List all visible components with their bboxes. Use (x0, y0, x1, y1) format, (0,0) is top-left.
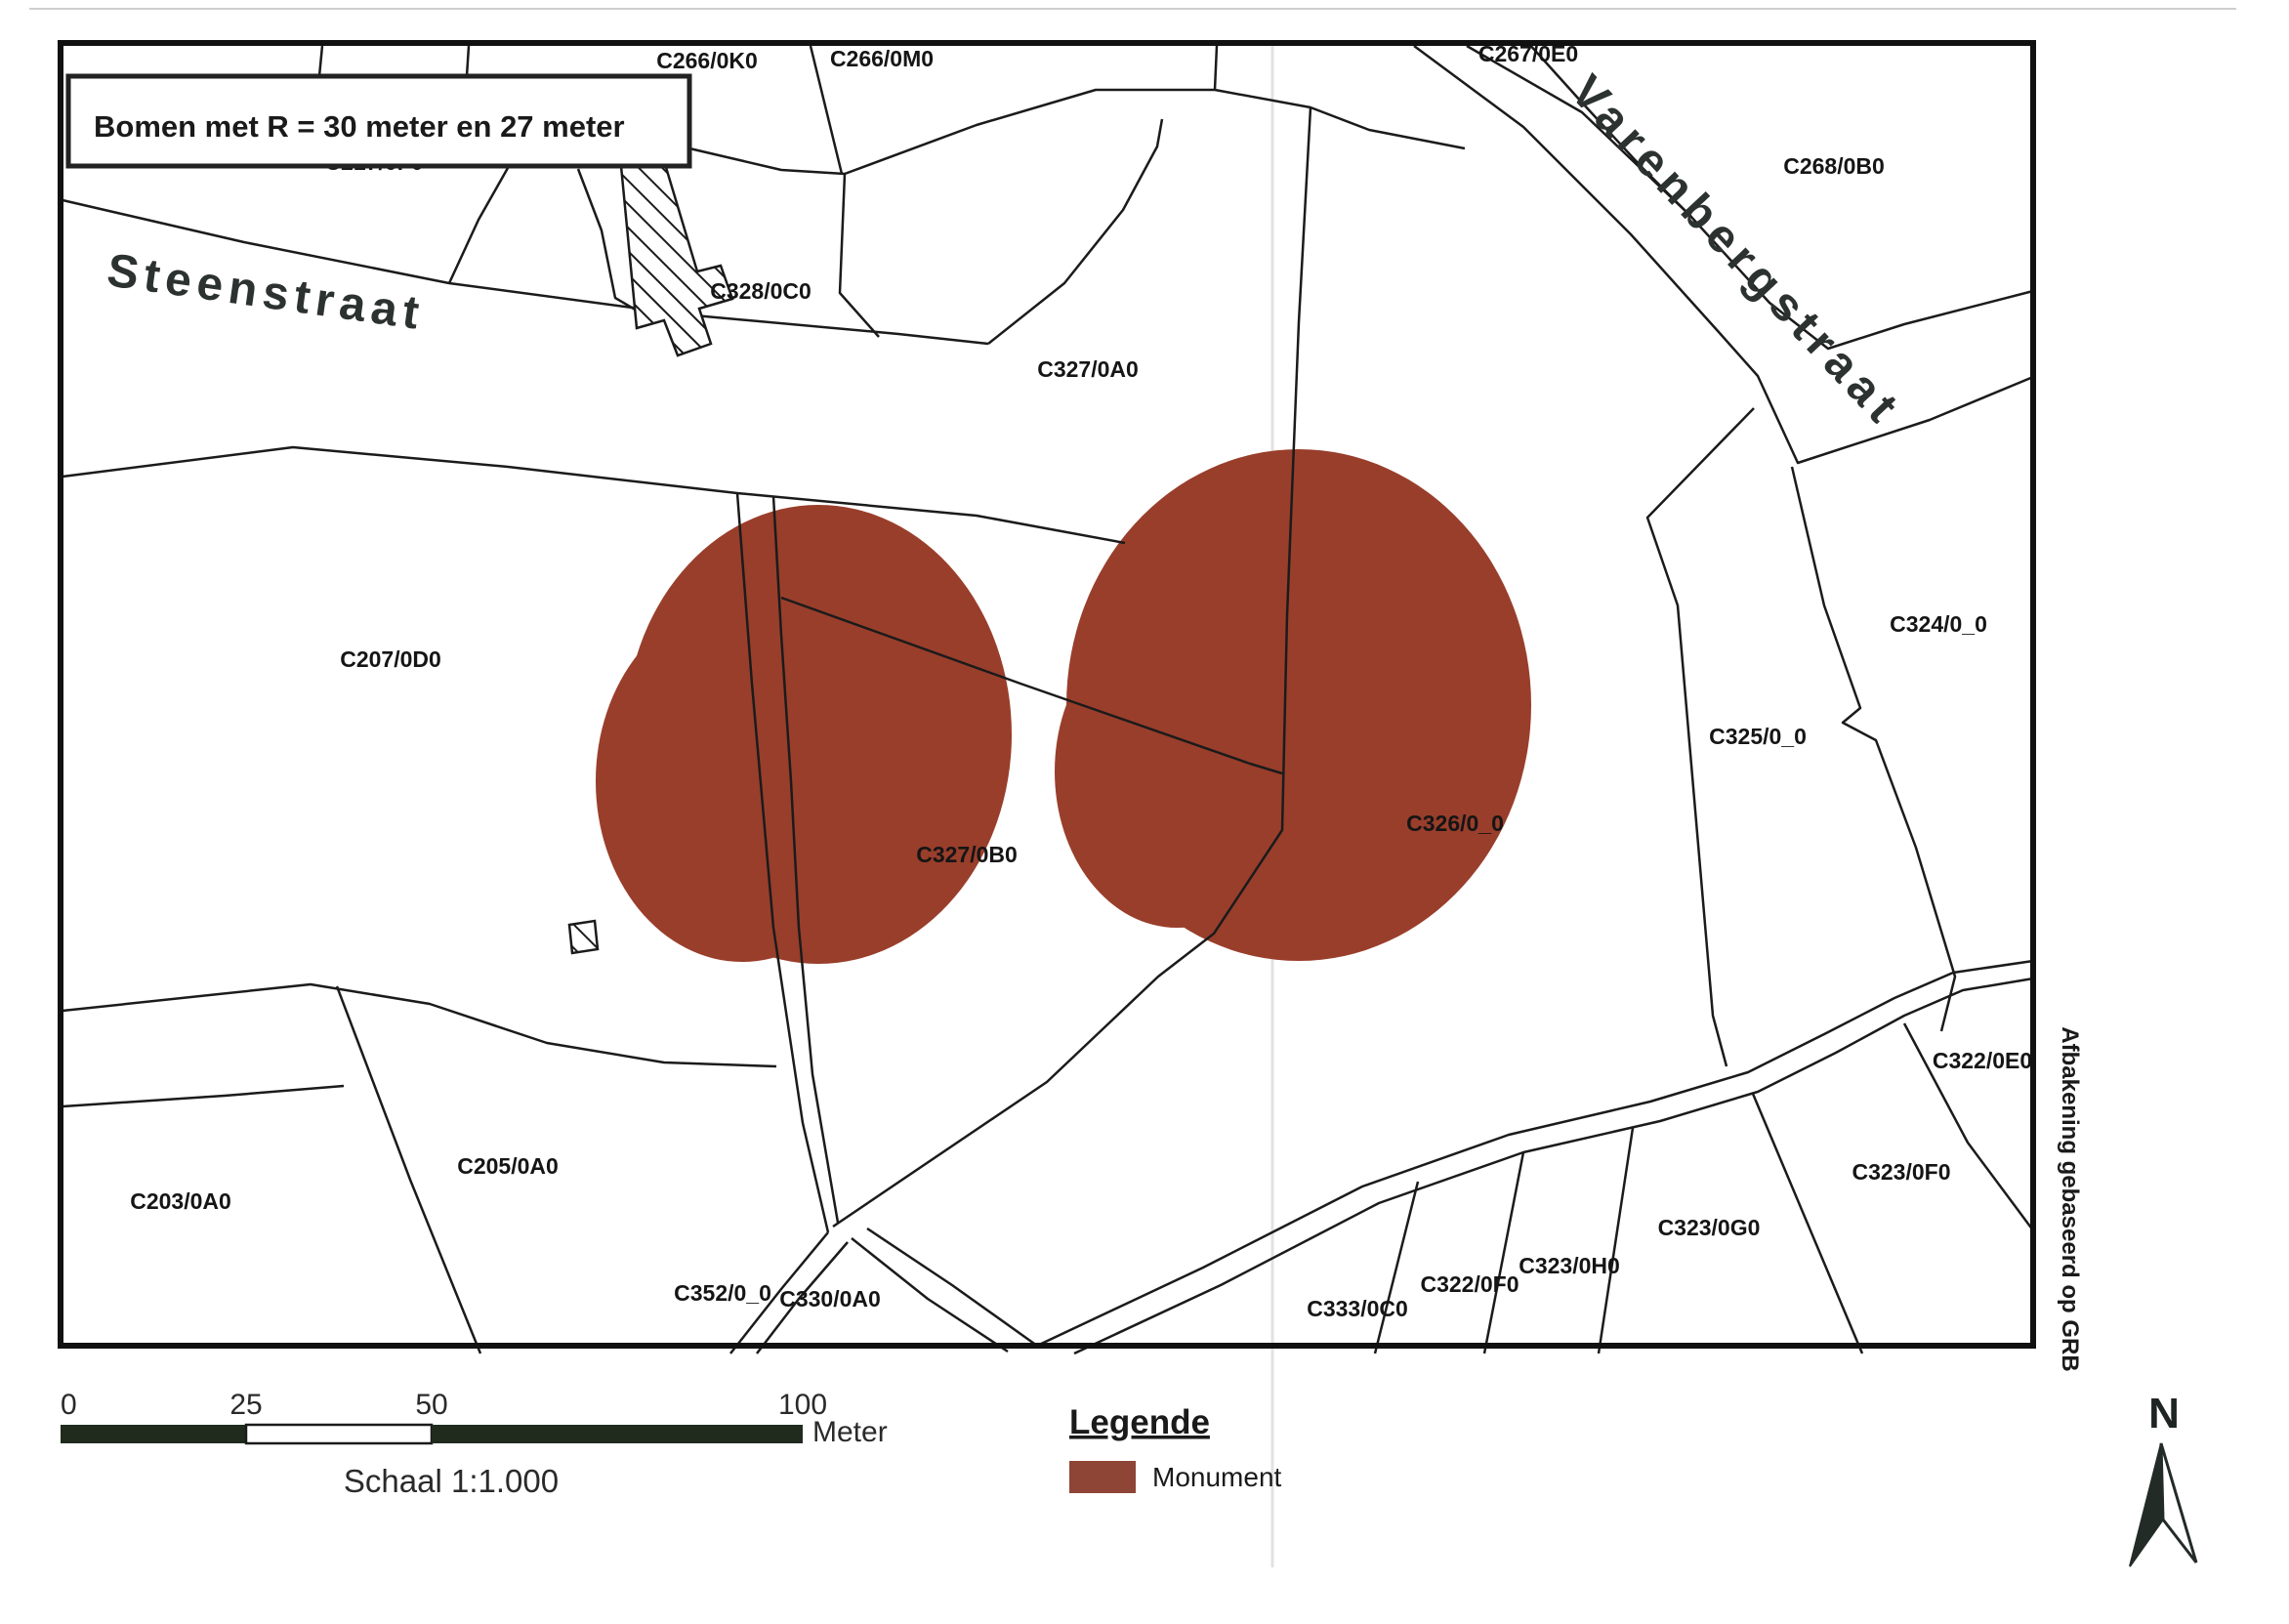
boundary-m0-e0-divider (1215, 46, 1217, 90)
parcel-label: C333/0C0 (1307, 1296, 1408, 1321)
parcel-label: C324/0_0 (1890, 611, 1987, 637)
building-c328 (621, 154, 732, 355)
north-arrow-right-half (2161, 1443, 2196, 1562)
parcel-label: C326/0_0 (1406, 811, 1504, 836)
north-arrow-left-half (2130, 1443, 2163, 1566)
parcel-label: C328/0C0 (710, 278, 812, 304)
boundary-c323h-divider (1599, 1128, 1633, 1353)
boundary-belowbox-a (449, 168, 508, 283)
scalebar-seg-dark-1 (61, 1425, 246, 1443)
parcel-label: C330/0A0 (779, 1286, 881, 1312)
parcel-label: C323/0F0 (1852, 1159, 1950, 1185)
legend-item-label: Monument (1152, 1462, 1282, 1492)
monument-zone-2 (596, 601, 889, 962)
parcel-label: C327/0A0 (1037, 356, 1139, 382)
grb-note: Afbakening gebaseerd op GRB (2057, 1026, 2083, 1371)
legend-swatch-monument (1069, 1461, 1136, 1493)
legend-group: LegendeMonument (1069, 1403, 1282, 1493)
street-name-1: Steenstraat (104, 244, 428, 340)
parcel-label: C268/0B0 (1783, 153, 1885, 179)
parcel-label: C205/0A0 (457, 1153, 559, 1179)
parcel-label: C322/0E0 (1933, 1048, 2032, 1073)
title-box-group: Bomen met R = 30 meter en 27 meter (68, 76, 689, 166)
scalebar-seg-white (246, 1425, 432, 1443)
grb-note-group: Afbakening gebaseerd op GRB (2057, 1026, 2083, 1371)
parcel-label: C325/0_0 (1709, 724, 1807, 749)
parcel-label: C323/0G0 (1658, 1215, 1761, 1240)
parcel-label: C323/0H0 (1519, 1253, 1620, 1278)
parcel-label: C207/0D0 (340, 646, 441, 672)
map-canvas: C217/0F0C266/0K0C266/0M0C267/0E0C268/0B0… (0, 0, 2289, 1619)
boundary-topleft-div-b (467, 46, 469, 76)
parcel-label: C203/0A0 (130, 1188, 231, 1214)
map-title: Bomen met R = 30 meter en 27 meter (94, 109, 625, 144)
boundary-long-road-upper (1037, 961, 2033, 1346)
boundary-sw-lower-boundary (62, 1086, 344, 1106)
boundary-c324-c325-zigzag (1792, 467, 1955, 1031)
boundary-steenstraat-up-right (988, 119, 1162, 344)
scalebar-tick: 50 (415, 1389, 447, 1421)
boundary-fork-se-b (867, 1228, 1037, 1346)
scalebar-group: 02550100MeterSchaal 1:1.000 (61, 1389, 888, 1499)
monument-zone-4 (1055, 615, 1299, 928)
parcel-label: C327/0B0 (916, 842, 1018, 867)
parcel-label: C322/0F0 (1420, 1271, 1519, 1297)
north-label: N (2148, 1390, 2180, 1437)
boundary-north-band (689, 90, 1465, 174)
scale-caption: Schaal 1:1.000 (344, 1463, 559, 1499)
north-arrow-group: N (2130, 1390, 2196, 1566)
parcel-label: C266/0M0 (830, 46, 934, 71)
scalebar-tick: 0 (61, 1389, 77, 1421)
parcel-label: C352/0_0 (674, 1280, 771, 1306)
scanned-map-page: C217/0F0C266/0K0C266/0M0C267/0E0C268/0B0… (0, 0, 2289, 1619)
boundary-c322f-divider (1484, 1152, 1523, 1353)
scan-edge-artifact (29, 8, 2236, 10)
boundary-sw-upper-boundary (62, 984, 776, 1066)
small-shed (569, 921, 598, 953)
parcel-label: C266/0K0 (656, 48, 758, 73)
scalebar-unit: Meter (812, 1416, 888, 1448)
legend-title: Legende (1069, 1403, 1210, 1441)
street-name-2: Varenbergstraat (1561, 65, 1912, 437)
boundary-c323g-divider (1753, 1094, 1862, 1353)
scalebar-seg-dark-2 (432, 1425, 803, 1443)
boundary-steenstraat-bottom (62, 447, 1125, 543)
monument-zones (596, 43, 1531, 1567)
boundary-c328-east (840, 174, 879, 337)
boundary-topleft-div-a (319, 46, 322, 76)
boundary-c333-divider (1375, 1182, 1418, 1353)
scalebar-tick: 25 (229, 1389, 262, 1421)
